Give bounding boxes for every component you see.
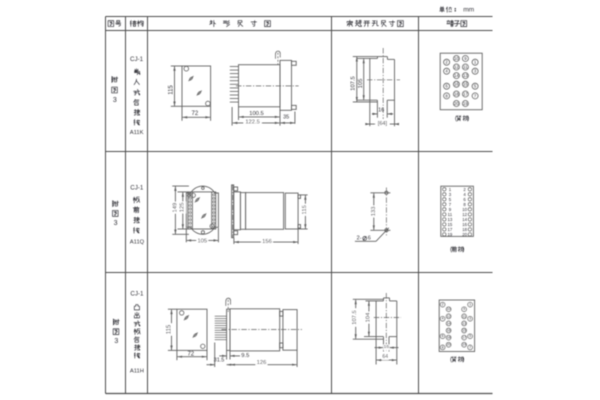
svg-text:126: 126 xyxy=(257,360,267,366)
svg-text:1: 1 xyxy=(474,60,477,65)
svg-text:14: 14 xyxy=(447,321,451,325)
svg-text:10: 10 xyxy=(447,307,451,311)
svg-text:156: 156 xyxy=(262,239,272,245)
svg-text:115: 115 xyxy=(167,324,173,334)
svg-text:104: 104 xyxy=(365,312,371,322)
svg-text:20: 20 xyxy=(462,232,467,237)
svg-text:10: 10 xyxy=(454,56,459,61)
svg-text:9: 9 xyxy=(464,56,467,61)
svg-text:72: 72 xyxy=(192,111,199,117)
svg-text:11: 11 xyxy=(462,314,466,318)
svg-text:): ) xyxy=(467,115,469,122)
svg-text:19: 19 xyxy=(462,343,466,347)
svg-text:16: 16 xyxy=(447,329,451,333)
svg-text:17: 17 xyxy=(463,92,468,97)
svg-text:8: 8 xyxy=(442,345,444,349)
svg-text:[64]: [64] xyxy=(378,121,388,127)
svg-text:115: 115 xyxy=(168,85,174,95)
svg-text:115: 115 xyxy=(302,205,308,214)
svg-text:15: 15 xyxy=(463,82,468,87)
svg-text:6: 6 xyxy=(442,334,444,338)
svg-text:A11H: A11H xyxy=(130,369,144,375)
svg-text:31.5: 31.5 xyxy=(214,357,225,363)
svg-text:16: 16 xyxy=(454,82,459,87)
svg-text:122.5: 122.5 xyxy=(245,120,260,126)
svg-text:7: 7 xyxy=(469,345,471,349)
svg-text:100.5: 100.5 xyxy=(249,111,264,117)
svg-text:): ) xyxy=(462,356,464,363)
svg-text:16: 16 xyxy=(384,344,390,350)
svg-text:5: 5 xyxy=(469,334,471,338)
svg-text:105: 105 xyxy=(358,79,364,89)
svg-text:12: 12 xyxy=(447,314,451,318)
svg-text:3: 3 xyxy=(474,69,477,74)
svg-text:A11Q: A11Q xyxy=(130,239,145,245)
svg-text:mm: mm xyxy=(463,7,474,14)
svg-text:105: 105 xyxy=(197,238,207,244)
svg-text:1: 1 xyxy=(469,303,471,307)
svg-text:3: 3 xyxy=(114,338,118,345)
svg-text:4: 4 xyxy=(445,69,448,74)
svg-text:9.5: 9.5 xyxy=(241,353,249,359)
svg-text:4: 4 xyxy=(442,317,444,321)
svg-text:19: 19 xyxy=(448,232,453,237)
svg-text:16: 16 xyxy=(378,108,384,114)
svg-text:2: 2 xyxy=(445,60,448,65)
svg-text:CJ-1: CJ-1 xyxy=(130,185,144,192)
svg-text:2: 2 xyxy=(442,303,444,307)
svg-text:20: 20 xyxy=(454,101,459,106)
svg-text:12: 12 xyxy=(454,65,459,70)
svg-text:8: 8 xyxy=(445,93,448,98)
svg-text:9: 9 xyxy=(463,307,465,311)
svg-text:CJ-1: CJ-1 xyxy=(130,56,144,63)
svg-text:107.5: 107.5 xyxy=(352,310,358,325)
svg-text:6: 6 xyxy=(445,84,448,89)
svg-text:15: 15 xyxy=(462,329,466,333)
svg-text:CJ-1: CJ-1 xyxy=(130,291,144,298)
svg-text:5: 5 xyxy=(474,84,477,89)
svg-text:3: 3 xyxy=(469,317,471,321)
svg-text:13: 13 xyxy=(463,73,468,78)
svg-text:3: 3 xyxy=(113,97,117,104)
svg-text:14: 14 xyxy=(454,73,459,78)
svg-text:17: 17 xyxy=(462,336,466,340)
svg-text:149: 149 xyxy=(172,203,178,213)
svg-text:107.5: 107.5 xyxy=(351,76,357,91)
svg-text:7: 7 xyxy=(474,93,477,98)
svg-text:18: 18 xyxy=(454,92,459,97)
svg-text:72: 72 xyxy=(187,351,194,357)
svg-text:A11K: A11K xyxy=(130,130,144,136)
svg-text:11: 11 xyxy=(463,65,468,70)
svg-text:18: 18 xyxy=(447,336,451,340)
svg-text:13: 13 xyxy=(462,321,466,325)
svg-text:3: 3 xyxy=(114,220,118,227)
svg-text:2-: 2- xyxy=(357,235,362,241)
svg-text:20: 20 xyxy=(447,343,451,347)
svg-text:125: 125 xyxy=(180,203,186,213)
svg-text:64: 64 xyxy=(382,354,388,360)
svg-text:6: 6 xyxy=(368,235,371,241)
svg-text:19: 19 xyxy=(463,101,468,106)
svg-text:35: 35 xyxy=(283,115,289,121)
svg-text:): ) xyxy=(462,246,464,253)
svg-text:133: 133 xyxy=(371,207,377,217)
